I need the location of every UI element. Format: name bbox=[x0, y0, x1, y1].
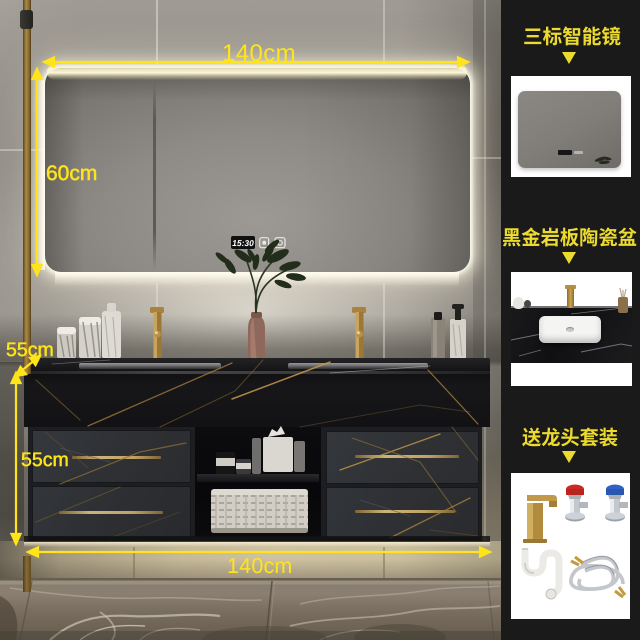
svg-text:140cm: 140cm bbox=[222, 40, 296, 67]
svg-text:55cm: 55cm bbox=[21, 449, 69, 471]
svg-text:55cm: 55cm bbox=[6, 339, 54, 361]
svg-text:60cm: 60cm bbox=[46, 162, 97, 185]
svg-text:140cm: 140cm bbox=[227, 554, 293, 578]
